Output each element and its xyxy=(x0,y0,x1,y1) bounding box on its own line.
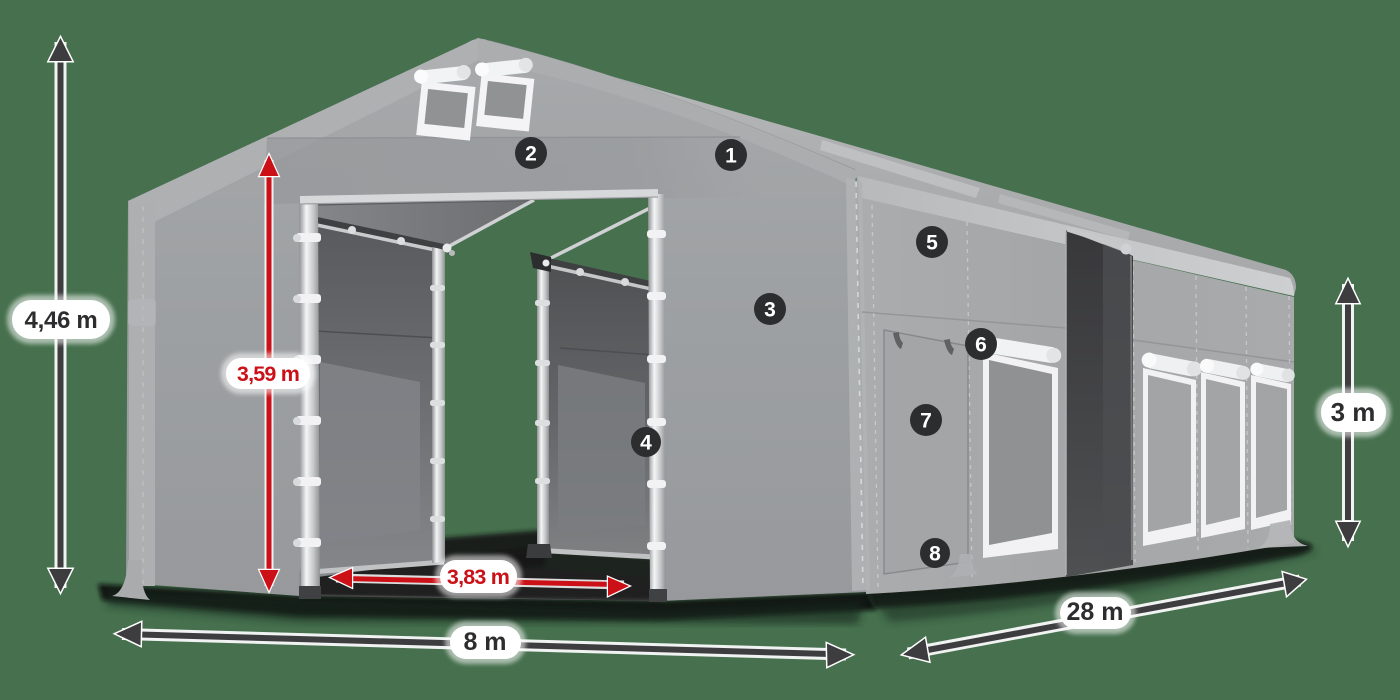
svg-text:6: 6 xyxy=(975,334,987,357)
svg-text:7: 7 xyxy=(920,410,932,433)
svg-text:2: 2 xyxy=(525,143,537,166)
svg-text:28 m: 28 m xyxy=(1067,598,1124,626)
svg-text:4,46 m: 4,46 m xyxy=(25,307,98,334)
svg-text:4: 4 xyxy=(640,432,652,455)
svg-text:5: 5 xyxy=(926,232,938,255)
svg-text:3: 3 xyxy=(764,299,776,322)
svg-text:8: 8 xyxy=(929,543,941,566)
svg-text:3,83 m: 3,83 m xyxy=(447,565,509,589)
svg-text:1: 1 xyxy=(725,145,737,168)
svg-text:8 m: 8 m xyxy=(463,628,506,656)
svg-text:3 m: 3 m xyxy=(1331,397,1376,427)
svg-text:3,59 m: 3,59 m xyxy=(237,362,299,386)
